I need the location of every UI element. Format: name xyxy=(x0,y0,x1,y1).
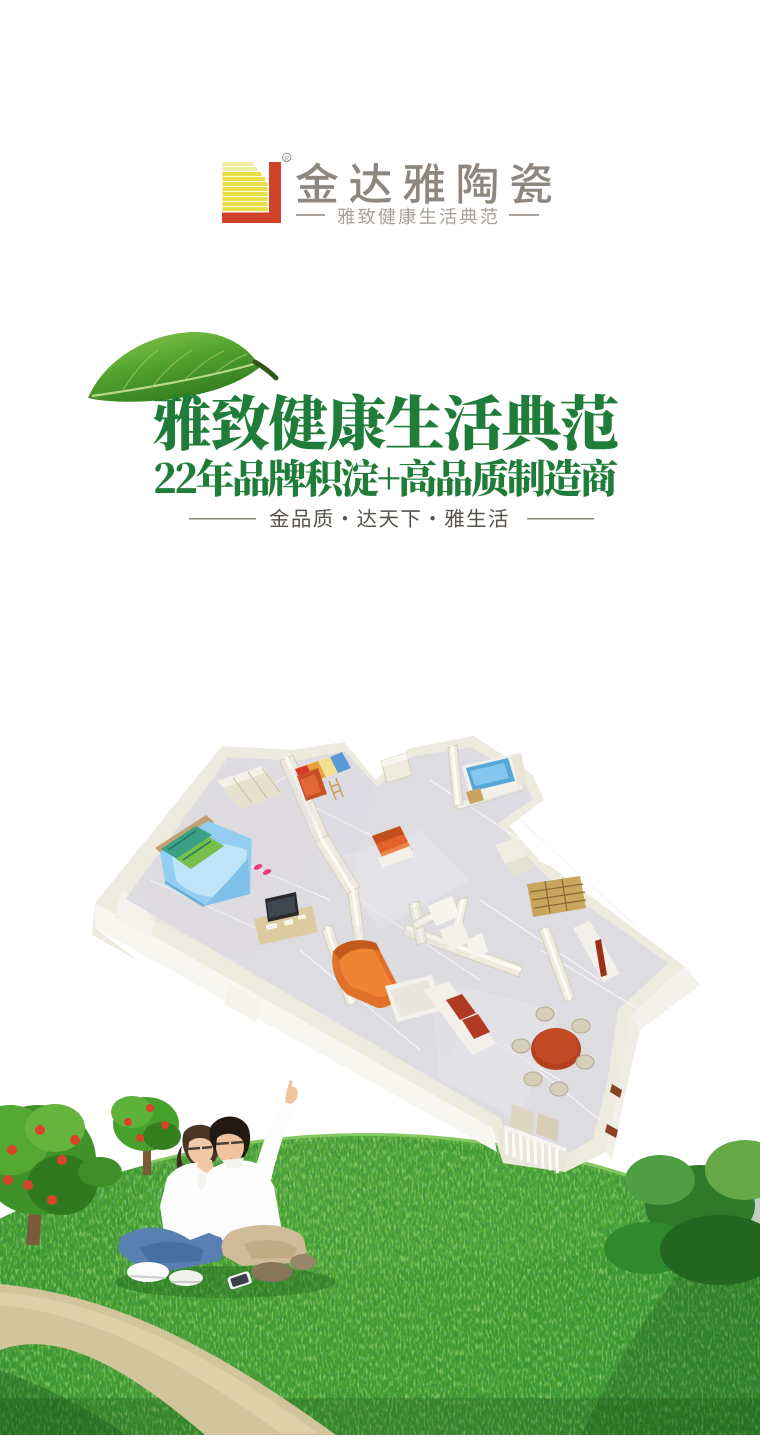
svg-text:R: R xyxy=(284,155,289,162)
